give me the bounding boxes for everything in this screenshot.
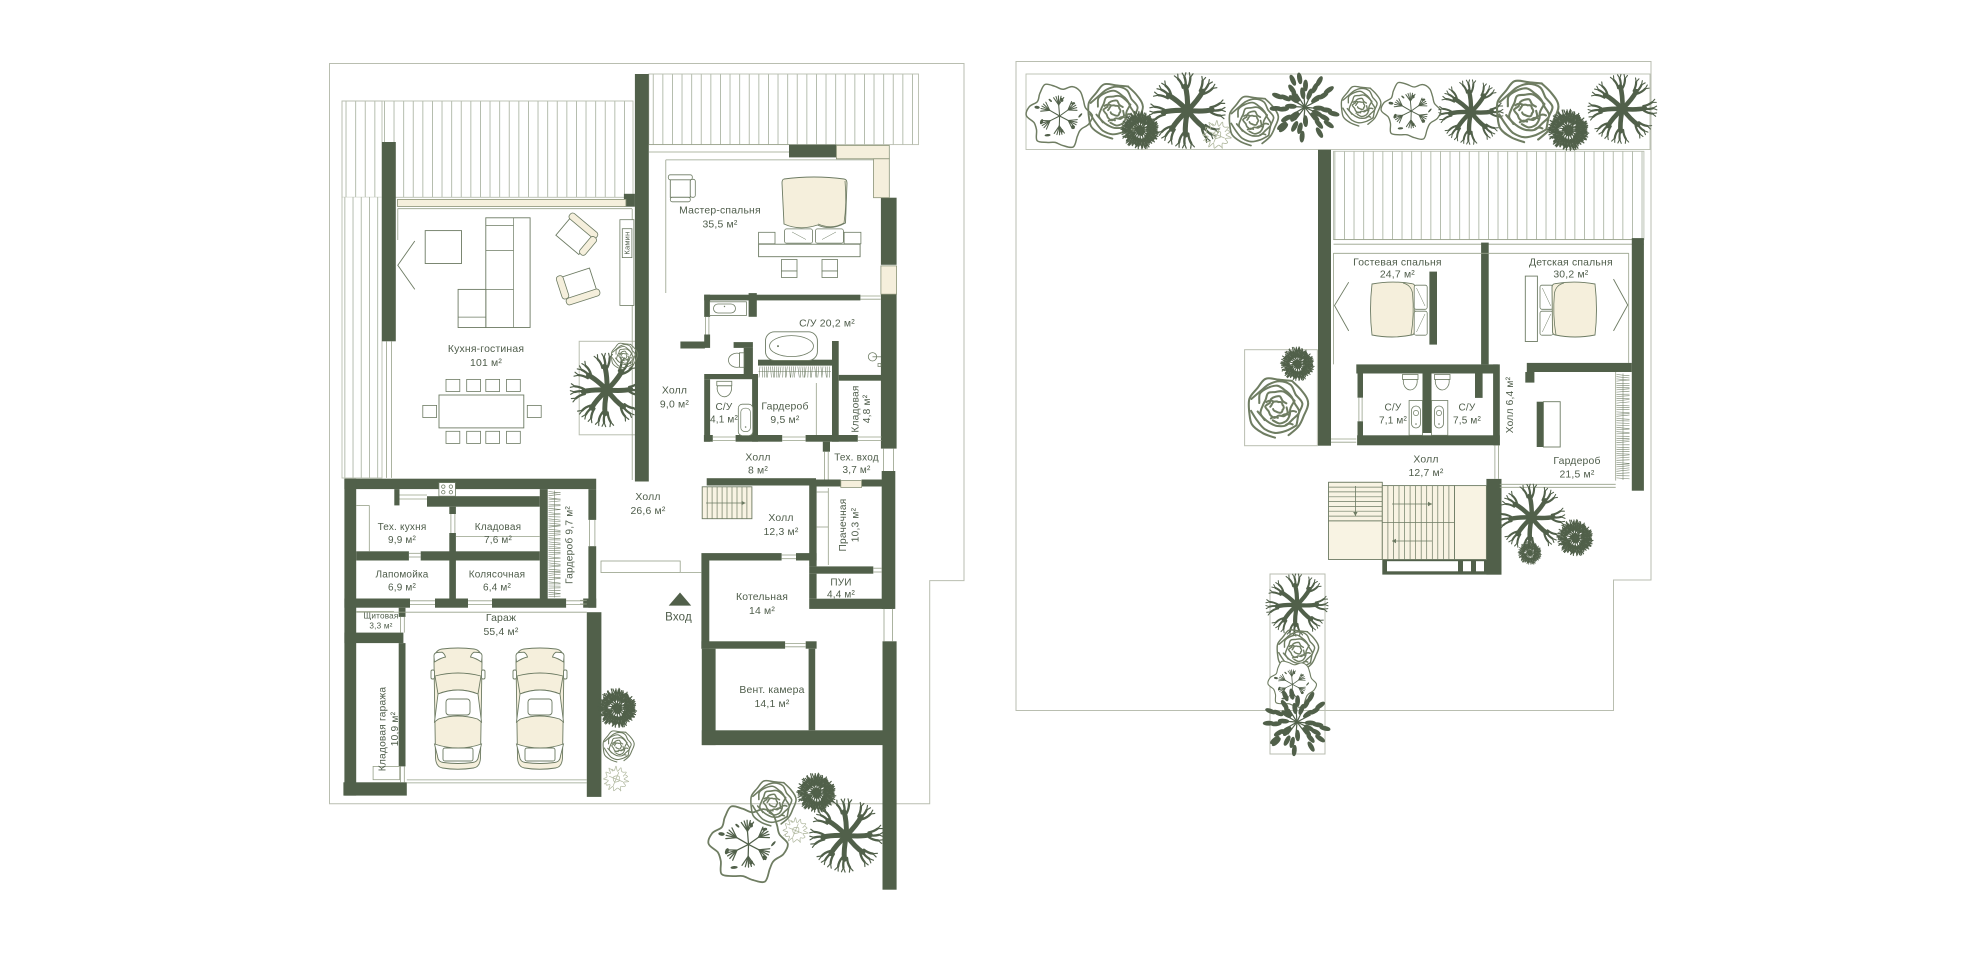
svg-text:Щитовая: Щитовая	[363, 612, 398, 621]
svg-text:Детская спальня: Детская спальня	[1529, 258, 1613, 269]
svg-text:24,7 м²: 24,7 м²	[1380, 270, 1415, 281]
svg-text:Кладовая: Кладовая	[475, 522, 521, 533]
svg-text:Гардероб 9,7 м²: Гардероб 9,7 м²	[564, 506, 576, 584]
svg-text:6,9 м²: 6,9 м²	[388, 583, 417, 594]
svg-text:3,7 м²: 3,7 м²	[842, 465, 871, 476]
svg-text:Колясочная: Колясочная	[469, 570, 526, 581]
svg-text:Кладовая гаража: Кладовая гаража	[378, 687, 389, 772]
svg-text:10,9 м²: 10,9 м²	[390, 711, 401, 746]
svg-text:Прачечная: Прачечная	[838, 499, 849, 552]
svg-text:7,1 м²: 7,1 м²	[1379, 416, 1408, 427]
svg-text:7,5 м²: 7,5 м²	[1453, 416, 1482, 427]
svg-text:Кладовая: Кладовая	[851, 385, 862, 432]
svg-text:ПУИ: ПУИ	[830, 578, 851, 589]
svg-text:14,1 м²: 14,1 м²	[754, 699, 789, 710]
svg-text:4,4 м²: 4,4 м²	[827, 590, 856, 601]
svg-text:С/У: С/У	[1459, 403, 1476, 414]
svg-text:Холл: Холл	[1413, 455, 1438, 466]
svg-text:14 м²: 14 м²	[749, 606, 775, 617]
svg-text:3,3 м²: 3,3 м²	[369, 622, 392, 631]
svg-text:Тех. вход: Тех. вход	[834, 453, 879, 464]
svg-text:9,5 м²: 9,5 м²	[770, 415, 799, 426]
svg-text:Гостевая спальня: Гостевая спальня	[1353, 258, 1442, 269]
svg-text:4,8 м²: 4,8 м²	[862, 394, 873, 423]
svg-text:12,3 м²: 12,3 м²	[763, 527, 798, 538]
svg-text:8 м²: 8 м²	[748, 466, 768, 477]
svg-text:10,3 м²: 10,3 м²	[851, 507, 862, 542]
svg-text:Холл: Холл	[745, 453, 770, 464]
svg-text:Кухня-гостиная: Кухня-гостиная	[448, 344, 524, 355]
svg-text:Холл: Холл	[635, 492, 660, 503]
svg-text:Вент. камера: Вент. камера	[739, 685, 804, 696]
svg-text:Вход: Вход	[665, 612, 692, 624]
svg-text:Гараж: Гараж	[486, 613, 516, 624]
svg-text:6,4 м²: 6,4 м²	[483, 583, 512, 594]
svg-text:С/У: С/У	[716, 402, 733, 413]
svg-text:21,5 м²: 21,5 м²	[1559, 470, 1594, 481]
svg-text:Лапомойка: Лапомойка	[375, 570, 428, 581]
svg-text:Мастер-спальня: Мастер-спальня	[679, 206, 761, 217]
svg-text:12,7 м²: 12,7 м²	[1408, 468, 1443, 479]
svg-text:55,4 м²: 55,4 м²	[483, 627, 518, 638]
svg-text:101 м²: 101 м²	[470, 358, 502, 369]
svg-text:Холл: Холл	[662, 386, 687, 397]
svg-text:Холл: Холл	[768, 513, 793, 524]
svg-text:Котельная: Котельная	[736, 592, 788, 603]
svg-text:9,0 м²: 9,0 м²	[660, 400, 689, 411]
svg-text:35,5 м²: 35,5 м²	[702, 220, 737, 231]
svg-text:9,9 м²: 9,9 м²	[388, 535, 417, 546]
svg-text:Гардероб: Гардероб	[761, 401, 808, 413]
svg-text:26,6 м²: 26,6 м²	[630, 506, 665, 517]
svg-text:4,1 м²: 4,1 м²	[710, 415, 739, 426]
svg-text:Холл 6,4 м²: Холл 6,4 м²	[1505, 376, 1516, 433]
svg-text:7,6 м²: 7,6 м²	[484, 535, 513, 546]
svg-text:30,2 м²: 30,2 м²	[1553, 270, 1588, 281]
svg-text:С/У 20,2 м²: С/У 20,2 м²	[799, 319, 855, 330]
svg-text:Гардероб: Гардероб	[1553, 455, 1600, 467]
svg-text:Камин: Камин	[623, 232, 632, 255]
svg-text:Тех. кухня: Тех. кухня	[378, 522, 427, 533]
svg-text:С/У: С/У	[1385, 403, 1402, 414]
